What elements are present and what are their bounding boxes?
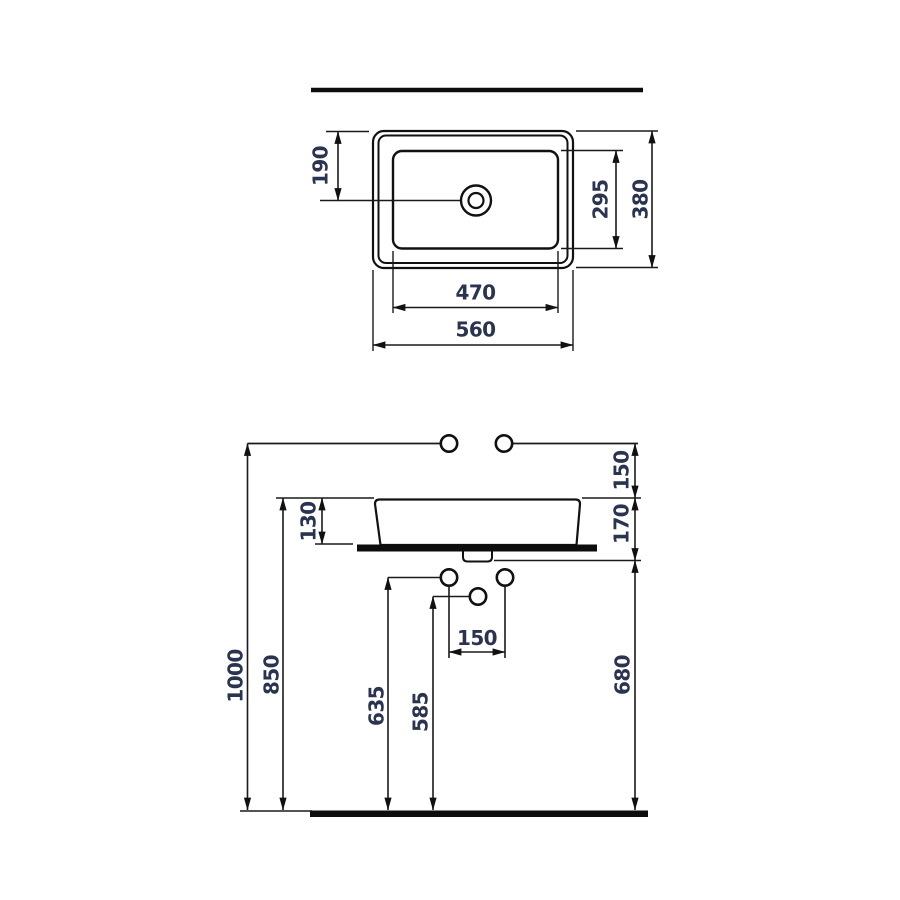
drain-hole xyxy=(470,588,486,604)
vessel-sink-profile xyxy=(375,500,580,546)
dim-label-585: 585 xyxy=(409,692,433,732)
dim-label-170: 170 xyxy=(610,504,634,544)
dim-label-1000: 1000 xyxy=(224,649,248,702)
dim-label-380: 380 xyxy=(629,180,653,220)
dim-label-680: 680 xyxy=(611,655,635,695)
dim-label-150-top: 150 xyxy=(610,451,634,491)
rim-inner-edge xyxy=(379,136,568,264)
faucet-hole-left xyxy=(441,435,457,451)
technical-drawing-canvas: 190 295 380 470 560 xyxy=(0,0,900,900)
faucet-hole-right xyxy=(496,435,512,451)
dim-label-560: 560 xyxy=(456,318,496,342)
washbasin-dimension-drawing: 190 295 380 470 560 xyxy=(0,0,900,900)
basin-opening xyxy=(393,151,558,249)
front-view: 130 150 170 680 1000 850 635 585 150 xyxy=(224,435,648,817)
drain-outer-ring xyxy=(461,186,491,216)
countertop-slab xyxy=(357,545,597,552)
drain-inner-ring xyxy=(469,193,484,208)
dim-label-295: 295 xyxy=(589,180,613,220)
drain-trap xyxy=(463,552,492,562)
dim-label-635: 635 xyxy=(365,686,389,726)
floor-line xyxy=(310,811,648,818)
dim-label-190: 190 xyxy=(309,146,333,186)
dim-label-130: 130 xyxy=(297,502,321,542)
top-view: 190 295 380 470 560 xyxy=(309,90,658,351)
dim-label-850: 850 xyxy=(260,655,284,695)
supply-hole-left xyxy=(441,569,457,585)
dim-label-470: 470 xyxy=(456,281,496,305)
dim-label-150-holes: 150 xyxy=(457,626,497,650)
supply-hole-right xyxy=(497,569,513,585)
